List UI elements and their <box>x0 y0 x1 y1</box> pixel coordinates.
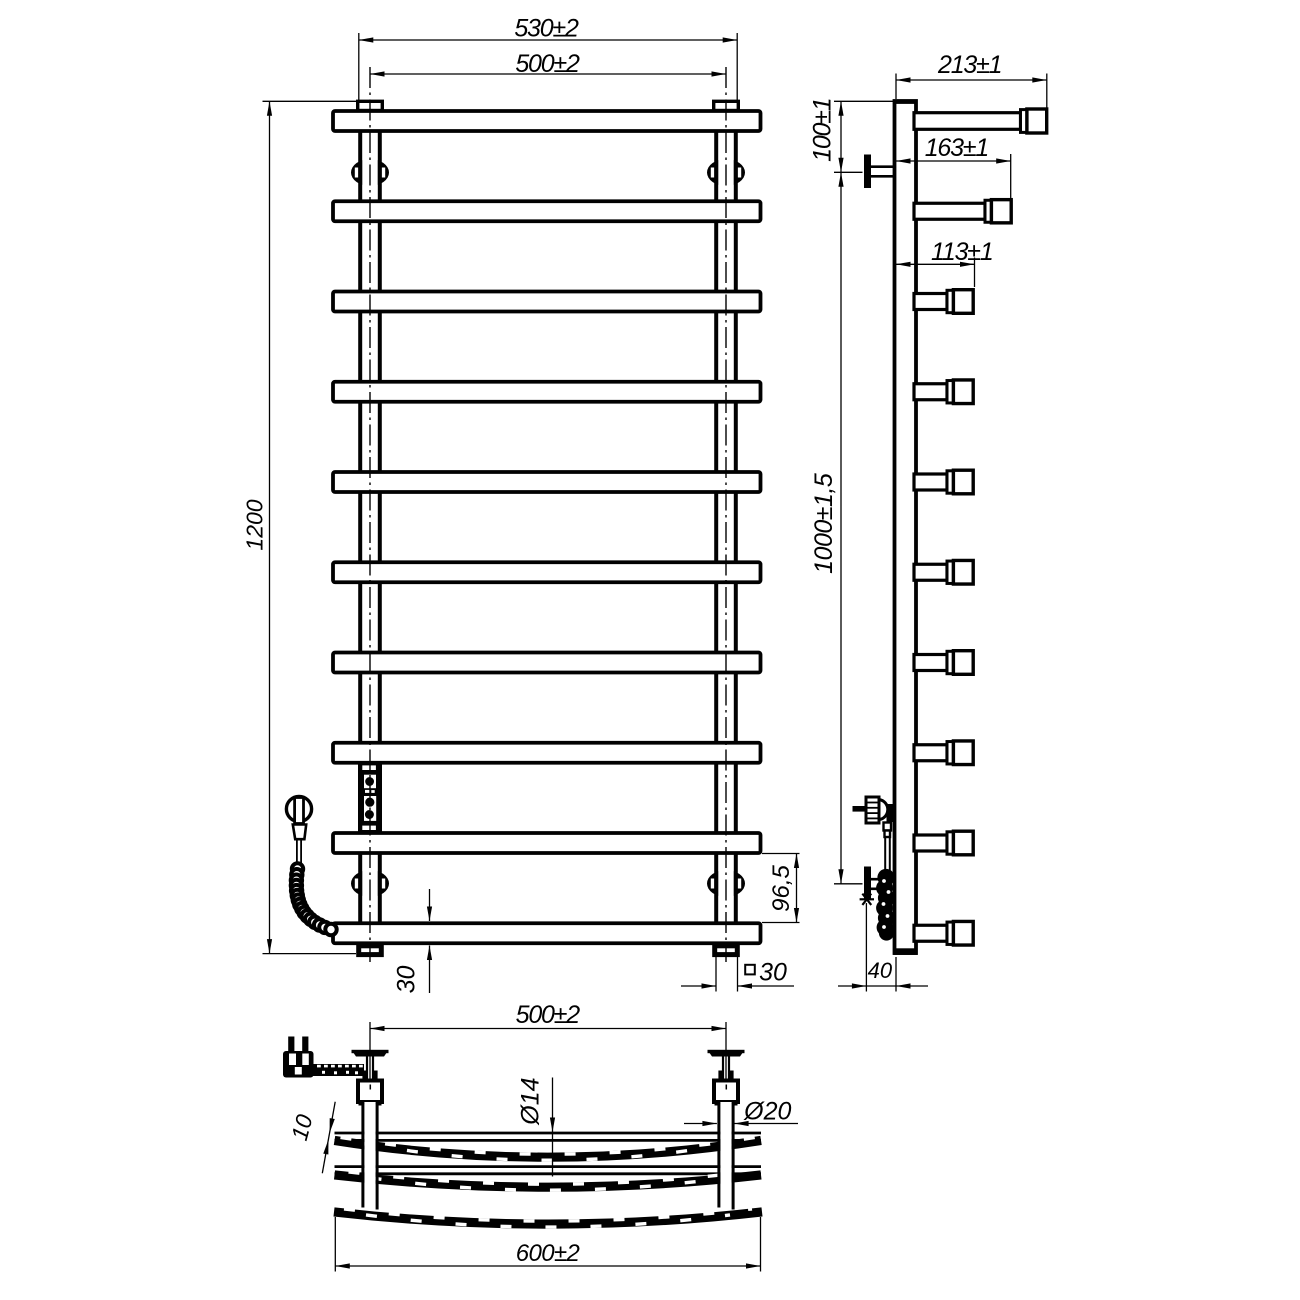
svg-text:30: 30 <box>759 959 787 987</box>
svg-text:1200: 1200 <box>242 499 268 550</box>
svg-text:163±1: 163±1 <box>925 134 988 162</box>
svg-text:600±2: 600±2 <box>516 1240 580 1267</box>
svg-text:213±1: 213±1 <box>937 51 1001 79</box>
svg-text:500±2: 500±2 <box>516 1001 581 1029</box>
svg-text:113±1: 113±1 <box>931 238 992 266</box>
svg-text:40: 40 <box>868 958 893 983</box>
svg-text:Ø20: Ø20 <box>743 1098 791 1126</box>
svg-text:1000±1,5: 1000±1,5 <box>810 473 838 574</box>
svg-text:96,5: 96,5 <box>768 864 795 911</box>
svg-text:Ø14: Ø14 <box>517 1077 545 1125</box>
svg-text:500±2: 500±2 <box>515 50 580 78</box>
svg-text:530±2: 530±2 <box>514 15 579 43</box>
svg-text:30: 30 <box>393 966 421 994</box>
svg-text:100±1: 100±1 <box>809 99 837 162</box>
